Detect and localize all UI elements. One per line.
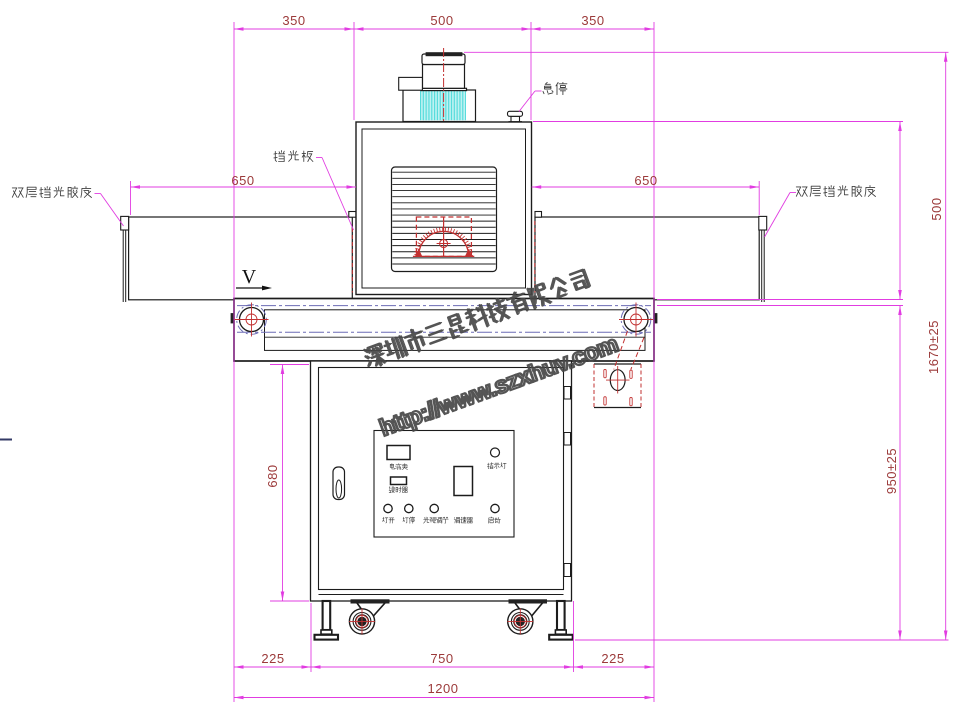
- svg-text:350: 350: [282, 13, 305, 28]
- svg-text:650: 650: [634, 173, 657, 188]
- svg-text:1200: 1200: [428, 681, 459, 696]
- svg-text:225: 225: [601, 651, 624, 666]
- svg-text:500: 500: [430, 13, 453, 28]
- svg-text:1670±25: 1670±25: [926, 320, 941, 374]
- svg-text:500: 500: [929, 197, 944, 220]
- svg-text:750: 750: [430, 651, 453, 666]
- svg-text:680: 680: [265, 464, 280, 487]
- svg-text:225: 225: [261, 651, 284, 666]
- svg-text:950±25: 950±25: [884, 448, 899, 494]
- svg-text:350: 350: [581, 13, 604, 28]
- svg-text:650: 650: [231, 173, 254, 188]
- svg-text:V: V: [242, 266, 257, 288]
